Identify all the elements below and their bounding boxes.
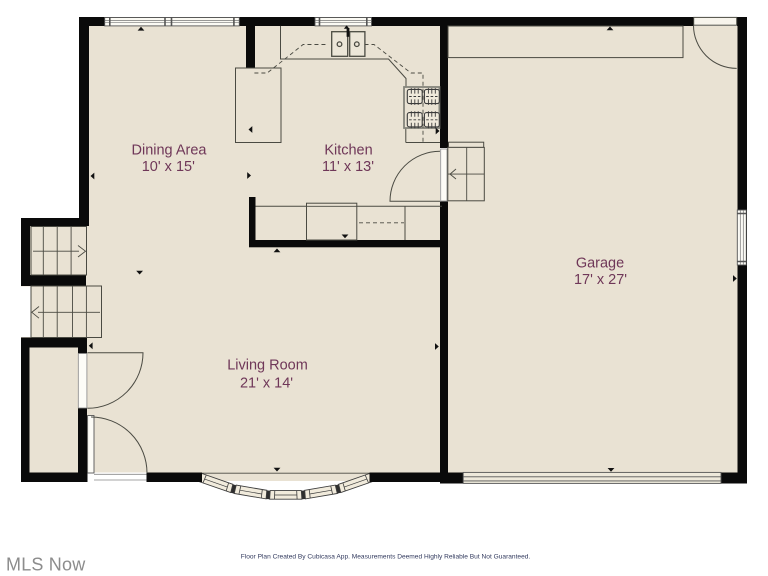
svg-text:21' x 14': 21' x 14' [240, 376, 293, 392]
svg-text:MLS Now: MLS Now [6, 555, 86, 575]
svg-text:Living Room: Living Room [227, 358, 308, 374]
svg-text:Floor Plan Created By Cubicasa: Floor Plan Created By Cubicasa App. Meas… [241, 554, 531, 561]
svg-text:10' x 15': 10' x 15' [142, 159, 195, 175]
svg-text:Dining Area: Dining Area [132, 143, 208, 159]
svg-text:17' x 27': 17' x 27' [574, 272, 627, 288]
svg-text:11' x 13': 11' x 13' [322, 159, 374, 175]
svg-text:Garage: Garage [576, 256, 624, 272]
svg-text:Kitchen: Kitchen [324, 143, 372, 159]
